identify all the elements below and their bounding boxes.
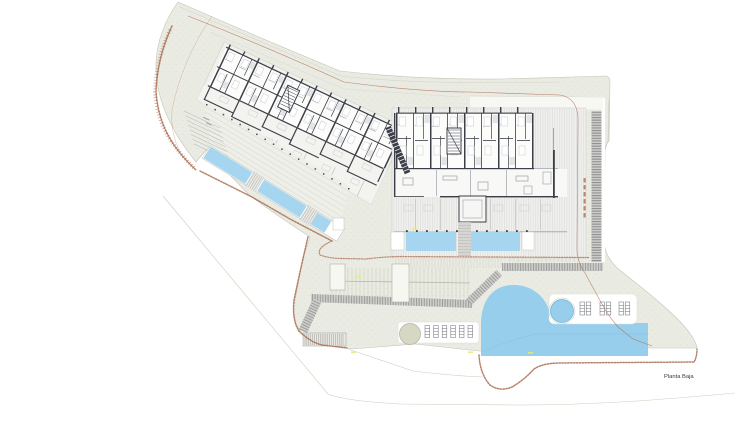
svg-text:Planta Baja: Planta Baja: [664, 374, 694, 380]
